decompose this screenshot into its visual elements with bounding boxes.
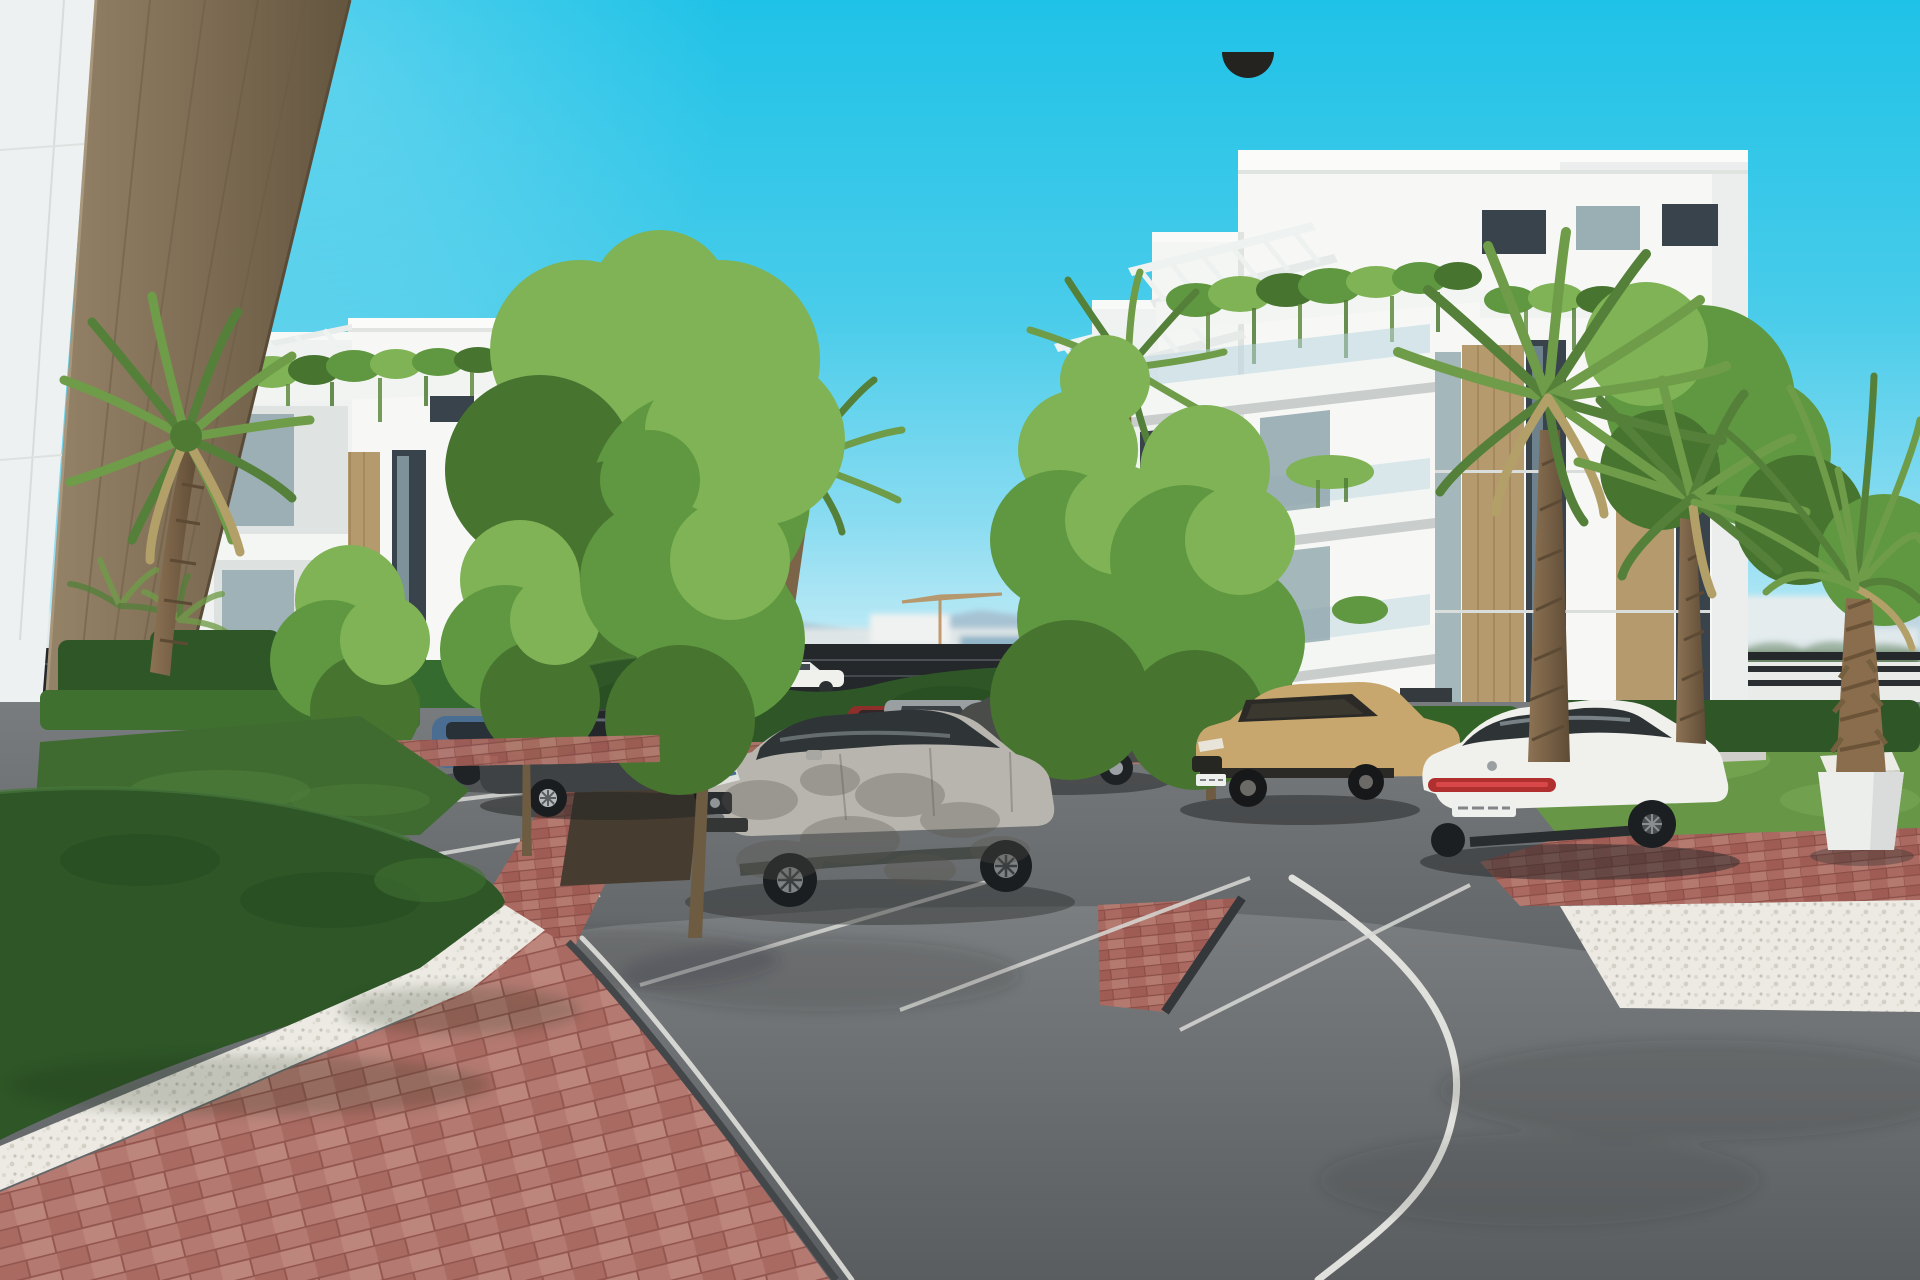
gravel-bed-right (1560, 900, 1920, 1012)
render-canvas (0, 0, 1920, 1280)
architectural-render-scene (0, 0, 1920, 1280)
